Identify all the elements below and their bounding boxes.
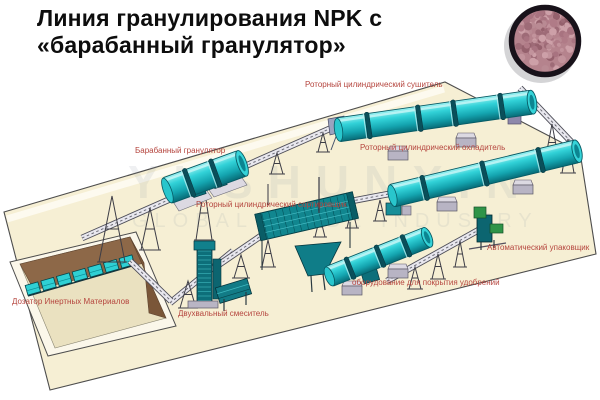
label-rotary-screener: Роторный цилиндрический сортировщик [196, 200, 347, 209]
npk-granulation-infographic: YUSHUNXIN GLOBAL TRADE INDUSTRY [0, 0, 600, 400]
label-drum-granulator: Барабанный гранулятор [135, 146, 225, 155]
label-coating-equipment: оборудование для покрытия удобрений [352, 278, 500, 287]
title-line-1: Линия гранулирования NPK с [37, 5, 487, 32]
page-title: Линия гранулирования NPK с «барабанный г… [37, 5, 487, 59]
label-automatic-packer: Автоматический упаковщик [487, 243, 589, 252]
title-line-2: «барабанный гранулятор» [37, 32, 487, 59]
label-inert-materials-doser: Дозатор Инертных Материалов [12, 297, 129, 306]
label-twin-shaft-mixer: Двухвальный смеситель [178, 309, 269, 318]
granules-inset-photo [504, 8, 579, 84]
label-rotary-cooler: Роторный цилиндрический охладитель [360, 143, 505, 152]
label-rotary-dryer: Роторный цилиндрический сушитель [305, 80, 443, 89]
